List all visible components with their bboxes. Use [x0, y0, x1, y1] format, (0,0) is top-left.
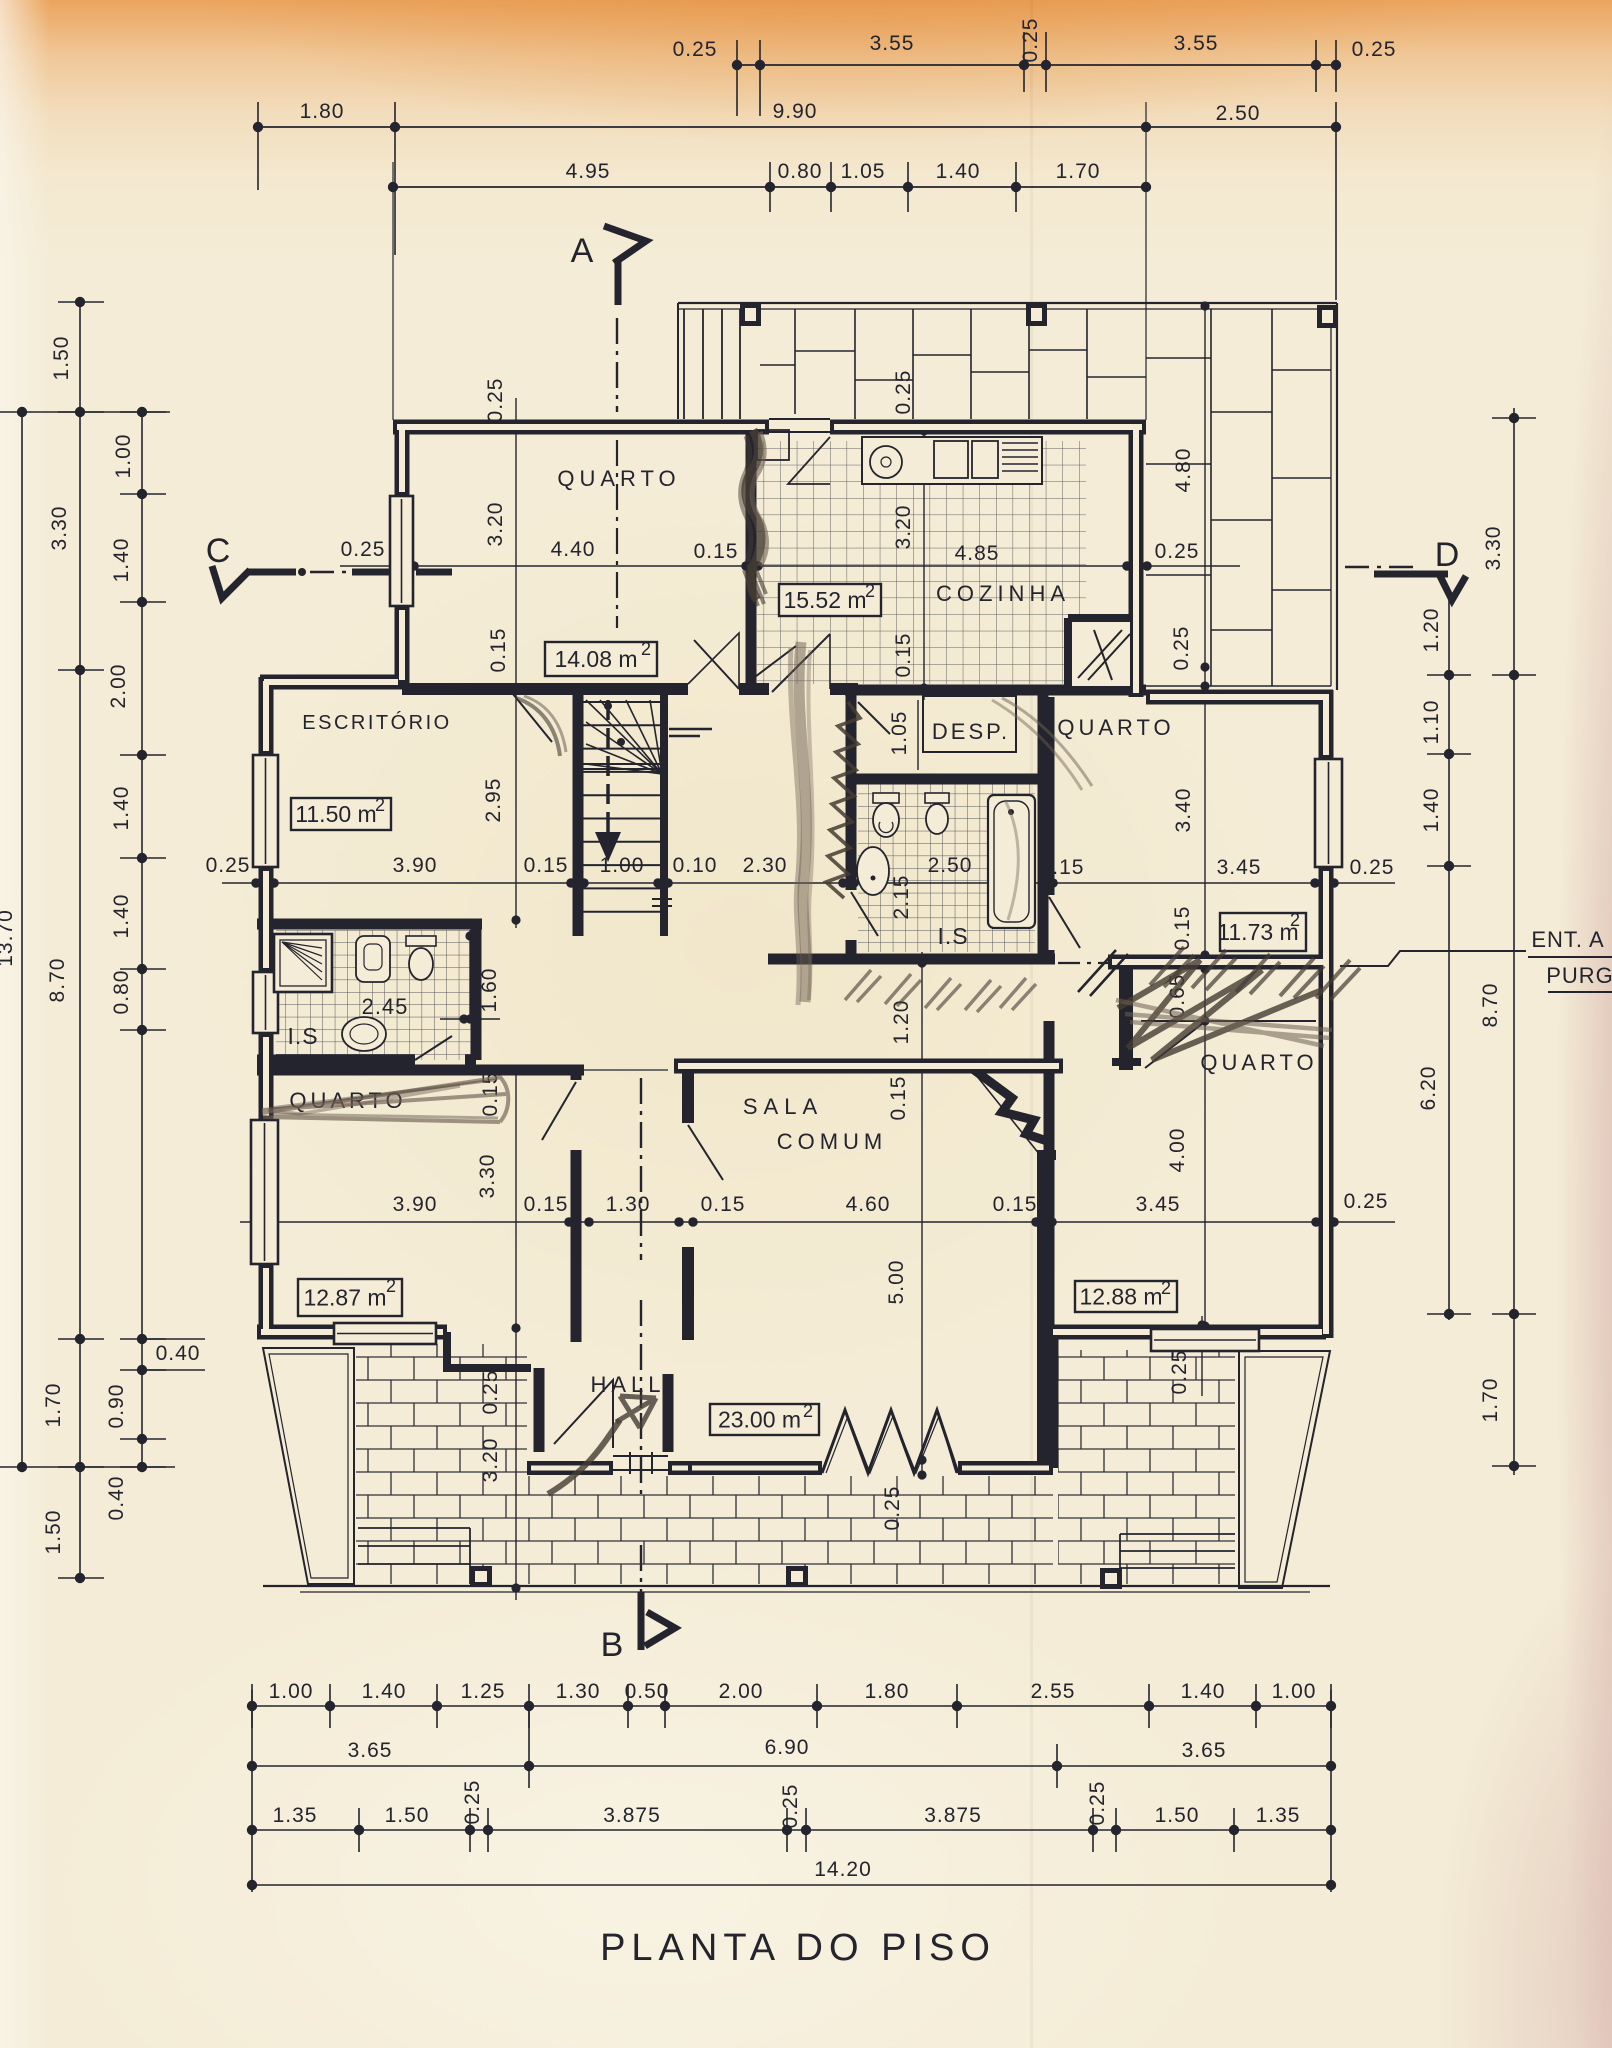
svg-text:0.25: 0.25 [1344, 1190, 1389, 1213]
svg-text:1.20: 1.20 [1420, 608, 1443, 653]
svg-text:PURG: PURG [1546, 963, 1612, 988]
svg-text:2: 2 [1290, 910, 1300, 930]
svg-text:1.00: 1.00 [269, 1680, 314, 1703]
svg-text:I.S: I.S [287, 1023, 318, 1049]
svg-text:3.40: 3.40 [1172, 788, 1195, 833]
svg-text:0.80: 0.80 [778, 160, 823, 183]
svg-text:3.55: 3.55 [1174, 32, 1219, 55]
svg-text:3.875: 3.875 [603, 1804, 661, 1827]
svg-text:2.00: 2.00 [107, 664, 130, 709]
svg-text:3.45: 3.45 [1136, 1193, 1181, 1216]
svg-text:3.30: 3.30 [48, 506, 71, 551]
svg-text:0.25: 0.25 [1352, 38, 1397, 61]
svg-text:1.70: 1.70 [1056, 160, 1101, 183]
svg-text:0.25: 0.25 [892, 370, 915, 415]
svg-text:1.80: 1.80 [865, 1680, 910, 1703]
svg-text:0.15: 0.15 [524, 1193, 569, 1216]
svg-text:1.40: 1.40 [110, 538, 133, 583]
svg-text:1.05: 1.05 [841, 160, 886, 183]
svg-text:2: 2 [386, 1276, 396, 1296]
svg-text:1.50: 1.50 [50, 336, 73, 381]
svg-text:1.40: 1.40 [1181, 1680, 1226, 1703]
svg-text:0.25: 0.25 [1019, 18, 1042, 63]
svg-text:11.73 m: 11.73 m [1217, 919, 1298, 945]
svg-text:0.25: 0.25 [1350, 856, 1395, 879]
svg-text:1.05: 1.05 [888, 711, 911, 756]
svg-text:0.15: 0.15 [701, 1193, 746, 1216]
svg-text:3.90: 3.90 [393, 1193, 438, 1216]
svg-text:1.40: 1.40 [1420, 788, 1443, 833]
svg-text:15.52 m: 15.52 m [783, 587, 866, 613]
svg-text:ENT. A: ENT. A [1531, 927, 1604, 952]
svg-text:B: B [601, 1626, 624, 1664]
svg-text:3.30: 3.30 [476, 1154, 499, 1199]
svg-text:1.40: 1.40 [110, 786, 133, 831]
svg-text:QUARTO: QUARTO [557, 466, 680, 491]
svg-text:I.S: I.S [937, 923, 968, 949]
svg-text:1.70: 1.70 [42, 1383, 65, 1428]
svg-text:0.15: 0.15 [487, 628, 510, 673]
svg-text:1.50: 1.50 [385, 1804, 430, 1827]
svg-text:4.95: 4.95 [566, 160, 611, 183]
svg-text:4.00: 4.00 [1166, 1128, 1189, 1173]
svg-text:0.80: 0.80 [110, 970, 133, 1015]
svg-text:DESP.: DESP. [932, 719, 1010, 744]
svg-text:0.90: 0.90 [105, 1384, 128, 1429]
svg-text:0.15: 0.15 [887, 1076, 910, 1121]
svg-text:0.25: 0.25 [1168, 1350, 1191, 1395]
svg-text:0.15: 0.15 [694, 540, 739, 563]
svg-text:3.55: 3.55 [870, 32, 915, 55]
svg-text:0.15: 0.15 [892, 633, 915, 678]
svg-text:1.10: 1.10 [1420, 700, 1443, 745]
svg-text:8.70: 8.70 [46, 958, 69, 1003]
svg-text:0.15: 0.15 [524, 854, 569, 877]
svg-text:14.20: 14.20 [814, 1858, 872, 1881]
svg-text:1.80: 1.80 [300, 100, 345, 123]
svg-text:1.70: 1.70 [1479, 1378, 1502, 1423]
svg-text:6.20: 6.20 [1417, 1066, 1440, 1111]
svg-text:1.00: 1.00 [112, 434, 135, 479]
svg-text:C: C [206, 532, 231, 570]
svg-text:0.25: 0.25 [673, 38, 718, 61]
svg-text:1.40: 1.40 [110, 894, 133, 939]
svg-text:1.30: 1.30 [556, 1680, 601, 1703]
svg-text:PLANTA DO PISO: PLANTA DO PISO [600, 1927, 996, 1969]
svg-text:8.70: 8.70 [1479, 983, 1502, 1028]
svg-text:12.88 m: 12.88 m [1079, 1284, 1162, 1310]
svg-text:2: 2 [375, 795, 385, 815]
svg-text:11.50 m: 11.50 m [295, 801, 376, 827]
svg-text:0.25: 0.25 [1170, 626, 1193, 671]
svg-text:0.25: 0.25 [881, 1486, 904, 1531]
svg-text:3.45: 3.45 [1217, 856, 1262, 879]
svg-text:3.65: 3.65 [1182, 1739, 1227, 1762]
svg-text:0.15: 0.15 [993, 1193, 1038, 1216]
svg-text:23.00 m: 23.00 m [718, 1407, 801, 1433]
svg-text:2.00: 2.00 [719, 1680, 764, 1703]
svg-text:1.50: 1.50 [42, 1510, 65, 1555]
svg-text:0.10: 0.10 [673, 854, 718, 877]
svg-text:2: 2 [803, 1401, 813, 1421]
svg-text:1.40: 1.40 [936, 160, 981, 183]
svg-text:9.90: 9.90 [773, 100, 818, 123]
svg-text:3.90: 3.90 [393, 854, 438, 877]
svg-text:0.25: 0.25 [484, 378, 507, 423]
svg-text:ESCRITÓRIO: ESCRITÓRIO [302, 711, 451, 734]
svg-text:0.50: 0.50 [625, 1680, 670, 1703]
svg-text:12.87 m: 12.87 m [303, 1285, 386, 1311]
svg-text:2.15: 2.15 [890, 875, 913, 920]
svg-text:0.15: 0.15 [1171, 906, 1194, 951]
svg-text:1.50: 1.50 [1155, 1804, 1200, 1827]
svg-text:HALL: HALL [590, 1372, 665, 1397]
svg-text:D: D [1435, 536, 1460, 574]
svg-text:2.30: 2.30 [743, 854, 788, 877]
svg-text:4.60: 4.60 [846, 1193, 891, 1216]
svg-text:1.40: 1.40 [362, 1680, 407, 1703]
svg-text:2.95: 2.95 [482, 778, 505, 823]
svg-text:QUARTO: QUARTO [1200, 1050, 1317, 1075]
svg-text:QUARTO: QUARTO [1057, 715, 1174, 740]
svg-text:COMUM: COMUM [777, 1129, 888, 1154]
svg-text:1.35: 1.35 [1256, 1804, 1301, 1827]
svg-text:1.30: 1.30 [606, 1193, 651, 1216]
svg-text:6.90: 6.90 [765, 1736, 810, 1759]
svg-text:0.25: 0.25 [206, 854, 251, 877]
svg-text:SALA: SALA [743, 1094, 823, 1119]
svg-text:0.25: 0.25 [779, 1784, 802, 1829]
svg-text:1.00: 1.00 [1272, 1680, 1317, 1703]
svg-text:4.85: 4.85 [955, 542, 1000, 565]
svg-text:2: 2 [865, 581, 875, 601]
svg-text:5.00: 5.00 [885, 1260, 908, 1305]
svg-text:2.45: 2.45 [362, 994, 409, 1019]
svg-text:3.20: 3.20 [892, 505, 915, 550]
svg-text:0.25: 0.25 [479, 1370, 502, 1415]
svg-text:4.80: 4.80 [1172, 448, 1195, 493]
svg-text:0.25: 0.25 [341, 538, 386, 561]
svg-text:0.25: 0.25 [461, 1780, 484, 1825]
svg-text:1.25: 1.25 [461, 1680, 506, 1703]
svg-text:0.40: 0.40 [156, 1342, 201, 1365]
svg-text:A: A [571, 232, 594, 270]
svg-text:0.40: 0.40 [105, 1476, 128, 1521]
svg-text:COZINHA: COZINHA [936, 581, 1070, 606]
svg-text:2.55: 2.55 [1031, 1680, 1076, 1703]
svg-text:2: 2 [641, 639, 651, 659]
svg-text:3.20: 3.20 [479, 1438, 502, 1483]
svg-text:1.35: 1.35 [273, 1804, 318, 1827]
svg-text:1.20: 1.20 [890, 1000, 913, 1045]
svg-text:0.25: 0.25 [1086, 1781, 1109, 1826]
svg-text:2.50: 2.50 [1216, 102, 1261, 125]
svg-text:13.70: 13.70 [0, 909, 17, 967]
svg-text:3.30: 3.30 [1482, 526, 1505, 571]
svg-text:3.65: 3.65 [348, 1739, 393, 1762]
svg-text:3.20: 3.20 [484, 502, 507, 547]
svg-text:2.50: 2.50 [928, 854, 973, 877]
svg-text:14.08 m: 14.08 m [554, 646, 637, 672]
svg-text:2: 2 [1161, 1278, 1171, 1298]
svg-text:3.875: 3.875 [924, 1804, 982, 1827]
svg-text:4.40: 4.40 [551, 538, 596, 561]
svg-text:0.25: 0.25 [1155, 540, 1200, 563]
